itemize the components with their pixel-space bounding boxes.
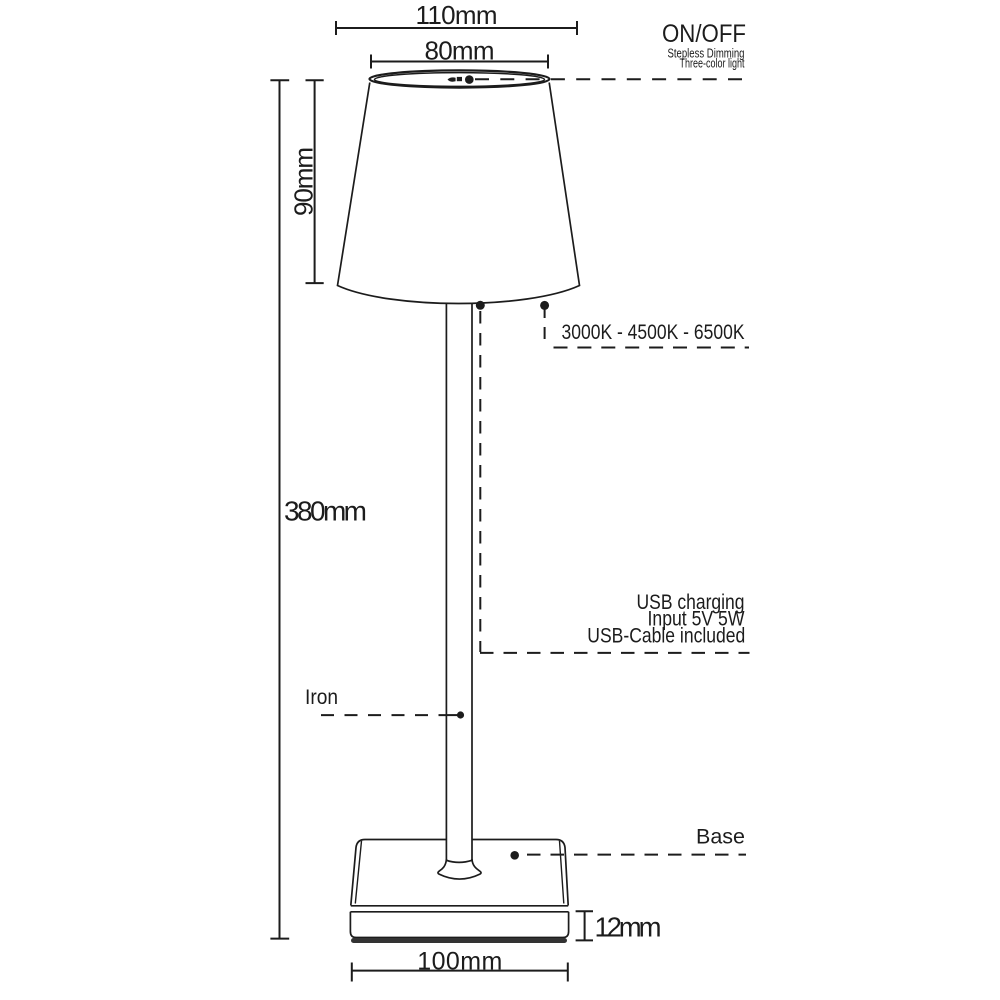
- svg-text:USB-Cable included: USB-Cable included: [587, 624, 745, 647]
- svg-text:100mm: 100mm: [417, 948, 502, 976]
- svg-text:ON/OFF: ON/OFF: [662, 20, 746, 48]
- svg-text:Base: Base: [696, 825, 745, 849]
- svg-text:380mm: 380mm: [284, 496, 367, 527]
- svg-text:80mm: 80mm: [425, 36, 495, 66]
- svg-text:12mm: 12mm: [595, 912, 662, 943]
- svg-text:110mm: 110mm: [416, 0, 498, 30]
- svg-text:Three-color light: Three-color light: [680, 57, 745, 71]
- svg-text:90mm: 90mm: [289, 147, 319, 216]
- svg-text:3000K - 4500K - 6500K: 3000K - 4500K - 6500K: [562, 321, 745, 344]
- svg-text:Iron: Iron: [305, 685, 338, 709]
